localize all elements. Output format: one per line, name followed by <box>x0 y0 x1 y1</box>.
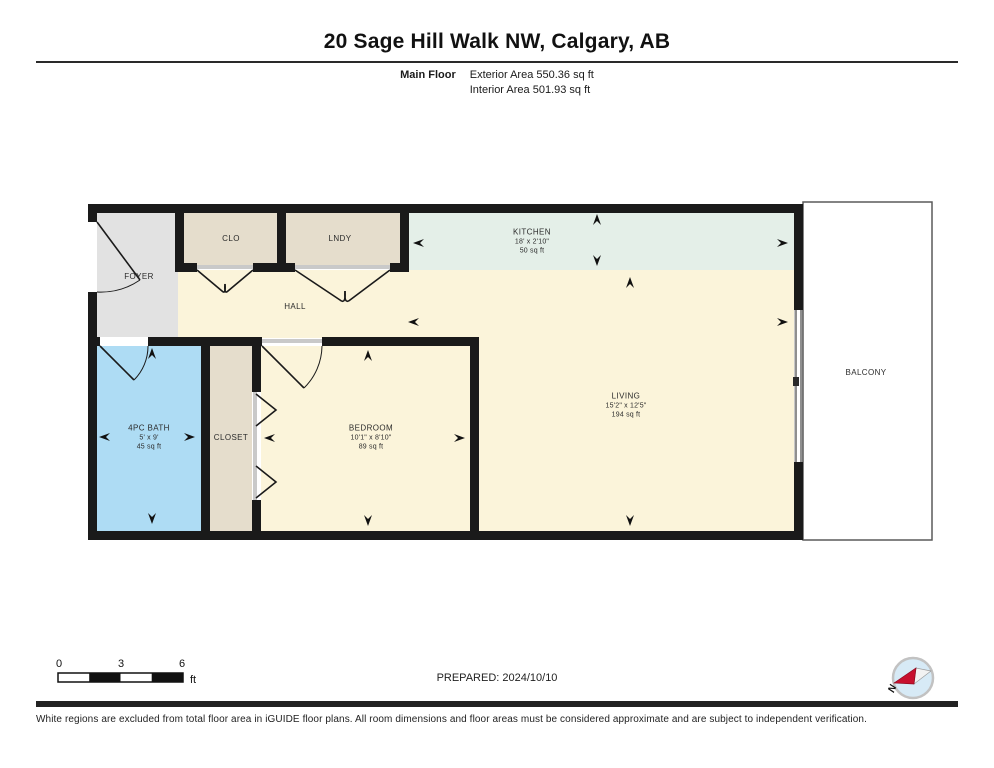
living-name: LIVING <box>606 392 647 402</box>
floorplan-drawing: N <box>0 0 994 768</box>
wall-left-lower <box>88 292 97 540</box>
living-area: 194 sq ft <box>606 411 647 420</box>
wall-left-upper <box>88 204 97 222</box>
slider-rail-inner <box>800 310 803 462</box>
wall-clo-lndy <box>277 204 286 272</box>
scale-tick-0: 0 <box>56 658 62 670</box>
clo-name: CLO <box>222 234 240 244</box>
lndy-name: LNDY <box>329 234 352 244</box>
wall-bath-top-left <box>88 337 100 346</box>
floorplan-page: 20 Sage Hill Walk NW, Calgary, AB Main F… <box>0 0 994 768</box>
balcony-name: BALCONY <box>845 368 886 378</box>
bedroom-threshold <box>262 339 322 343</box>
foyer-name: FOYER <box>124 272 154 282</box>
room-label-clo: CLO <box>222 234 240 244</box>
room-label-bedroom: BEDROOM 10'1" x 8'10" 89 sq ft <box>349 424 393 453</box>
room-label-hall: HALL <box>284 302 306 312</box>
wall-bedroom-right <box>470 338 479 540</box>
room-label-lndy: LNDY <box>329 234 352 244</box>
wall-stub-clo-left <box>175 263 197 272</box>
bedroom-dims: 10'1" x 8'10" <box>349 434 393 443</box>
kitchen-fill <box>409 213 794 270</box>
wall-stub-lndy-left <box>277 263 295 272</box>
kitchen-area: 50 sq ft <box>513 247 551 256</box>
wall-bedroom-top <box>322 337 479 346</box>
closet-threshold <box>253 392 257 500</box>
clo-threshold <box>197 265 253 269</box>
room-label-living: LIVING 15'2" x 12'5" 194 sq ft <box>606 392 647 421</box>
slider-handle <box>793 377 799 386</box>
living-dims: 15'2" x 12'5" <box>606 402 647 411</box>
wall-foyer-clo <box>175 204 184 272</box>
wall-lndy-kitchen <box>400 204 409 272</box>
bath-area: 45 sq ft <box>128 443 170 452</box>
kitchen-dims: 18' x 2'10" <box>513 238 551 247</box>
hall-name: HALL <box>284 302 306 312</box>
wall-bottom <box>88 531 803 540</box>
bedroom-area: 89 sq ft <box>349 443 393 452</box>
balcony-sliding-door <box>793 310 803 462</box>
kitchen-name: KITCHEN <box>513 228 551 238</box>
wall-right-upper <box>794 204 803 310</box>
wall-bath-closet <box>201 346 210 531</box>
room-label-foyer: FOYER <box>124 272 154 282</box>
closet-name: CLOSET <box>214 433 248 443</box>
room-label-balcony: BALCONY <box>845 368 886 378</box>
room-label-kitchen: KITCHEN 18' x 2'10" 50 sq ft <box>513 228 551 257</box>
lndy-threshold <box>295 265 390 269</box>
disclaimer-text: White regions are excluded from total fl… <box>36 714 958 725</box>
bath-name: 4PC BATH <box>128 424 170 434</box>
scale-tick-3: 3 <box>118 658 124 670</box>
wall-stub-lndy-right <box>390 263 409 272</box>
bedroom-name: BEDROOM <box>349 424 393 434</box>
bath-dims: 5' x 9' <box>128 434 170 443</box>
wall-bath-closet-top <box>148 337 262 346</box>
wall-top <box>88 204 803 213</box>
wall-closet-right-lower <box>252 500 261 531</box>
room-label-bath: 4PC BATH 5' x 9' 45 sq ft <box>128 424 170 453</box>
wall-closet-right-upper <box>252 338 261 392</box>
scale-tick-6: 6 <box>179 658 185 670</box>
room-label-closet: CLOSET <box>214 433 248 443</box>
footer-divider <box>36 701 958 707</box>
wall-right-lower <box>794 462 803 540</box>
prepared-date: PREPARED: 2024/10/10 <box>0 672 994 684</box>
